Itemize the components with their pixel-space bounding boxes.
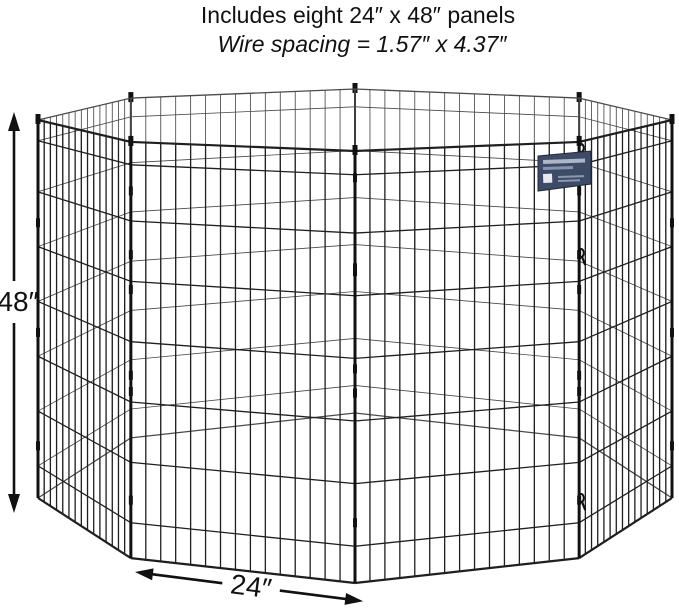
- hinge-clip: [670, 218, 674, 227]
- pen-panel-back: [131, 89, 355, 438]
- pen-panel-front: [131, 142, 355, 583]
- pen-panel-front: [355, 142, 579, 583]
- post-cap: [353, 145, 358, 155]
- hinge-clip: [353, 389, 357, 398]
- hinge-clip: [129, 496, 133, 505]
- pen-illustration: Includes eight 24″ x 48″ panels Wire spa…: [0, 0, 679, 609]
- height-label: 48″: [0, 286, 39, 317]
- hinge-clip: [353, 263, 357, 272]
- arrowhead-up-icon: [8, 112, 20, 131]
- header-line2: Wire spacing = 1.57″ x 4.37″: [217, 31, 507, 57]
- label-logo-square: [543, 174, 552, 183]
- pen-panel-front: [38, 120, 131, 558]
- brand-label-plate: [538, 151, 591, 191]
- hinge-clip: [129, 250, 133, 259]
- post-cap: [670, 114, 675, 124]
- hinge-clip: [36, 218, 40, 227]
- arrowhead-right-icon: [345, 593, 364, 607]
- post-cap: [36, 114, 41, 124]
- hinge-clip: [670, 328, 674, 337]
- hinge-clip: [36, 441, 40, 450]
- pen-panel-front: [579, 120, 672, 558]
- width-label: 24″: [229, 568, 274, 604]
- hinge-clip: [36, 328, 40, 337]
- hinge-clip: [577, 371, 581, 380]
- header-line1: Includes eight 24″ x 48″ panels: [201, 2, 515, 28]
- pen-panel-back: [579, 98, 672, 498]
- hinge-clip: [670, 441, 674, 450]
- hinge-clip: [129, 371, 133, 380]
- arrowhead-down-icon: [8, 494, 20, 513]
- hinge-clip: [353, 518, 357, 527]
- product-diagram: Includes eight 24″ x 48″ panels Wire spa…: [0, 0, 679, 609]
- height-dimension: 48″: [0, 112, 39, 513]
- pen-panel-back: [355, 89, 579, 438]
- width-dimension: 24″: [133, 556, 365, 609]
- post-cap: [128, 136, 133, 146]
- pen-panel-back: [38, 98, 131, 498]
- arrowhead-left-icon: [134, 566, 153, 580]
